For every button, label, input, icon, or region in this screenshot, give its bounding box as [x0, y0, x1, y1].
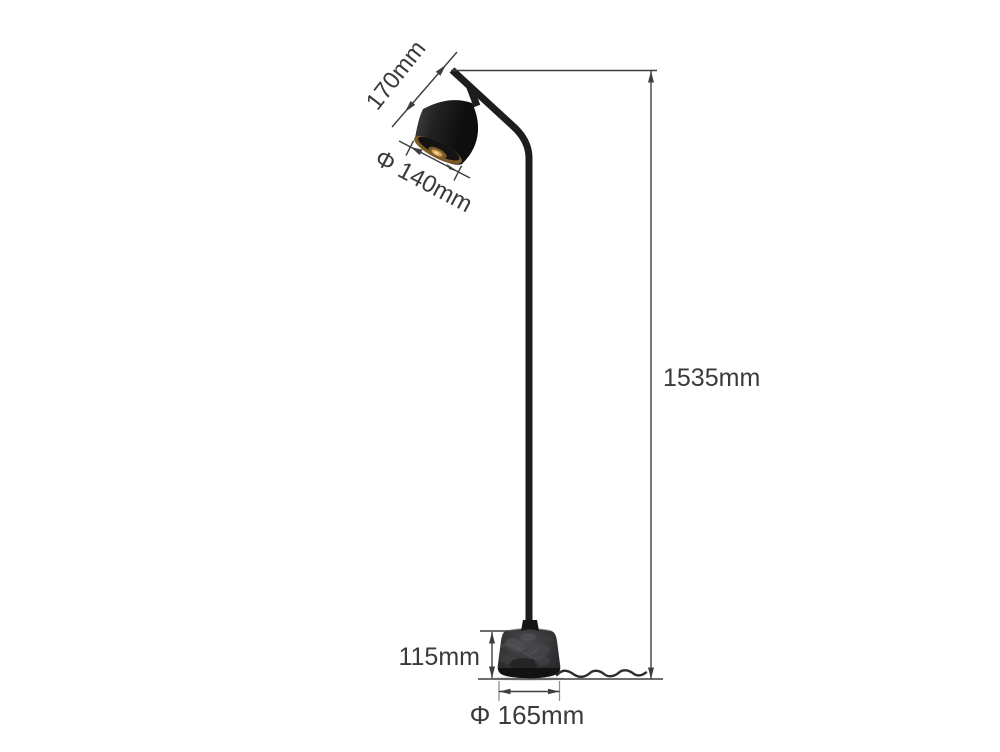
dim-arrow-right	[548, 689, 560, 695]
dimension-base-height: 115mm	[398, 631, 509, 678]
base-diameter-label: Φ 165mm	[470, 700, 585, 730]
head-height-label: 170mm	[361, 36, 432, 116]
dimension-total-height: 1535mm	[451, 71, 760, 680]
total-height-label: 1535mm	[663, 364, 760, 392]
lamp-shade	[411, 100, 478, 169]
base-height-label: 115mm	[398, 643, 480, 671]
diagram-canvas: 1535mm 170mm Φ 140mm 115mm	[0, 0, 1000, 752]
dim-arrow-down	[489, 667, 495, 679]
marble-base	[494, 620, 566, 682]
dimension-base-diameter: Φ 165mm	[470, 681, 585, 730]
dim-arrow-up	[648, 71, 654, 83]
dim-arrow-left	[499, 689, 511, 695]
dim-arrow-up	[489, 632, 495, 644]
power-cord	[557, 670, 646, 677]
floor-lamp-dimension-drawing: 1535mm 170mm Φ 140mm 115mm	[0, 0, 1000, 752]
dim-arrow-down	[648, 668, 654, 680]
